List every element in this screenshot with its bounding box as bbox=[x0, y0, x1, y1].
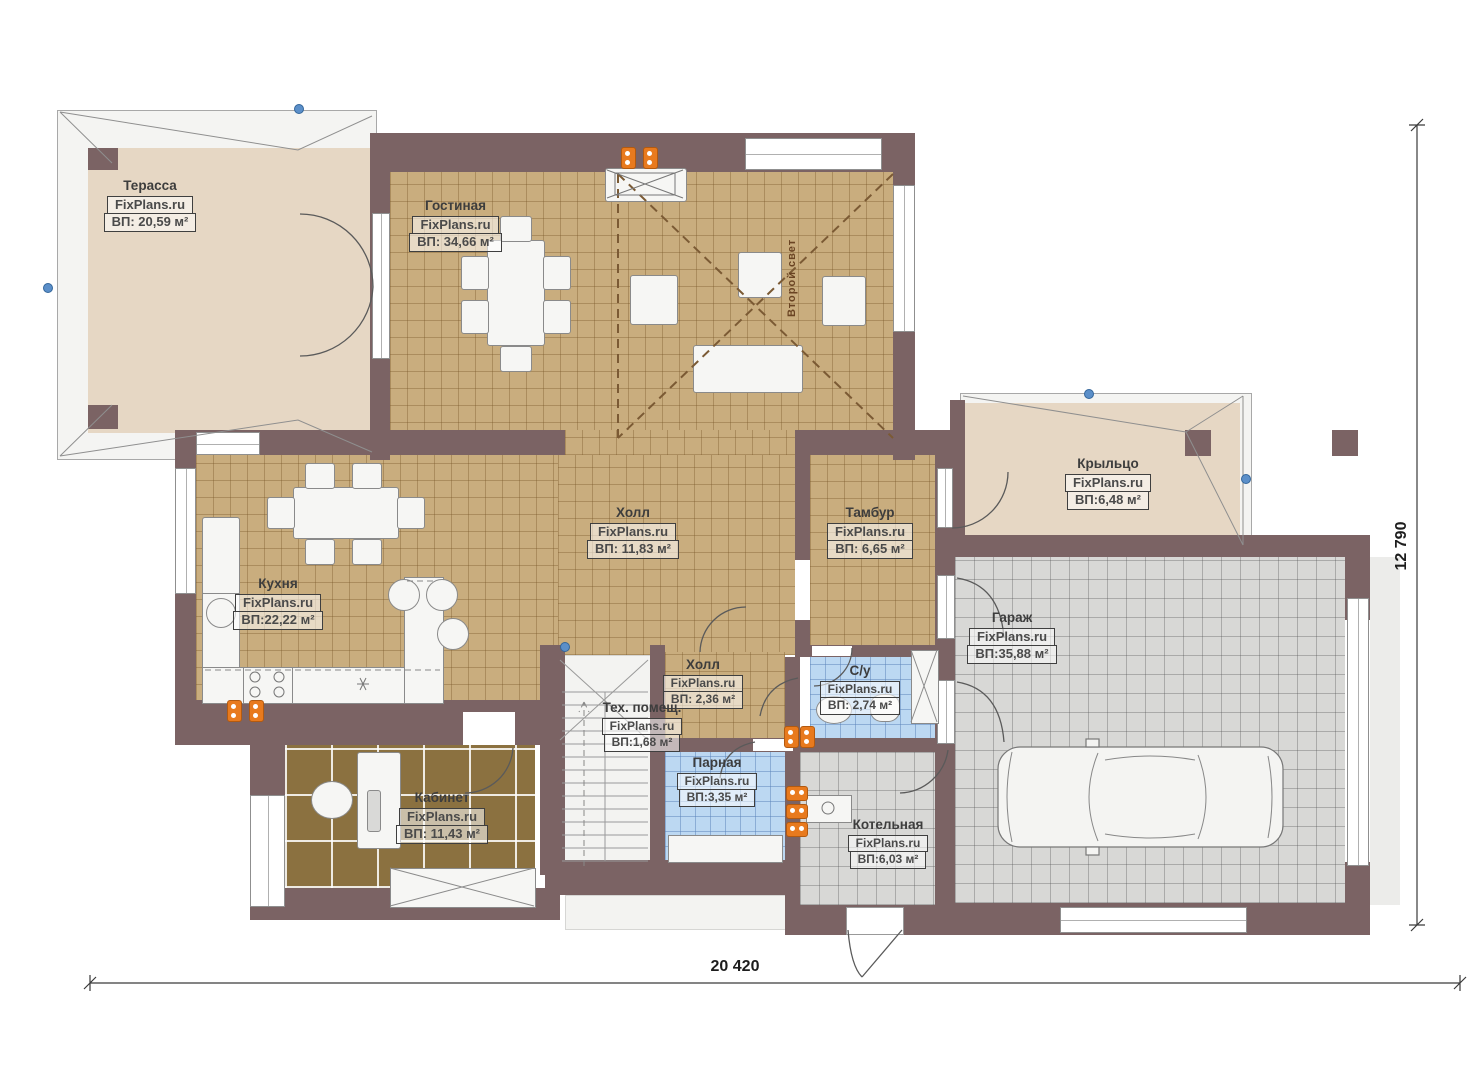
tambour-porch-door bbox=[937, 468, 953, 528]
marker-dot-icon bbox=[560, 642, 570, 652]
room-label-boiler: Котельная FixPlans.ru ВП:6,03 м² bbox=[828, 817, 948, 869]
chair bbox=[305, 463, 335, 489]
chair bbox=[543, 256, 571, 290]
marker-dot-icon bbox=[1241, 474, 1251, 484]
marker-dot-icon bbox=[43, 283, 53, 293]
garage-side-door bbox=[937, 680, 955, 744]
stove bbox=[243, 667, 293, 704]
room-label-kitchen: Кухня FixPlans.ru ВП:22,22 м² bbox=[218, 576, 338, 630]
sofa bbox=[693, 345, 803, 393]
room-name: Холл bbox=[616, 505, 650, 521]
marker-dot-icon bbox=[294, 104, 304, 114]
chair bbox=[352, 463, 382, 489]
chair bbox=[543, 300, 571, 334]
garage-gate bbox=[1347, 598, 1369, 866]
chair bbox=[352, 539, 382, 565]
terrace-pillar bbox=[88, 405, 118, 429]
living-right-window bbox=[893, 185, 915, 332]
watermark: FixPlans.ru bbox=[820, 681, 901, 699]
garage-bottom-window bbox=[1060, 907, 1247, 933]
steam-bench bbox=[668, 835, 783, 863]
heater-icon bbox=[786, 804, 808, 819]
heater-icon bbox=[249, 700, 264, 722]
living-top-window bbox=[745, 138, 882, 170]
porch-pillar bbox=[1185, 430, 1211, 456]
room-area: ВП: 11,83 м² bbox=[587, 540, 679, 559]
chair bbox=[397, 497, 425, 529]
bar-stool bbox=[388, 579, 420, 611]
room-name: Парная bbox=[693, 755, 742, 771]
room-area: ВП: 11,43 м² bbox=[396, 825, 488, 844]
terrace-double-door bbox=[372, 213, 390, 359]
wc-door-opening bbox=[812, 646, 852, 656]
garage-floor bbox=[955, 557, 1345, 903]
wall bbox=[935, 535, 1370, 557]
watermark: FixPlans.ru bbox=[848, 835, 929, 853]
room-name: Тех. помещ. bbox=[603, 700, 682, 716]
room-name: Кабинет bbox=[415, 790, 470, 806]
kitchen-table bbox=[293, 487, 399, 539]
room-label-garage: Гараж FixPlans.ru ВП:35,88 м² bbox=[952, 610, 1072, 664]
marker-dot-icon bbox=[1084, 389, 1094, 399]
room-name: Гараж bbox=[992, 610, 1032, 626]
watermark: FixPlans.ru bbox=[827, 523, 913, 542]
fireplace bbox=[605, 168, 687, 202]
chair bbox=[267, 497, 295, 529]
watermark: FixPlans.ru bbox=[677, 773, 758, 791]
armchair bbox=[630, 275, 678, 325]
chair bbox=[461, 300, 489, 334]
side-table bbox=[738, 252, 782, 298]
wall bbox=[540, 645, 565, 875]
terrace-pillar bbox=[88, 148, 118, 170]
hall-tambour-door-opening bbox=[795, 560, 810, 620]
office-left-window bbox=[250, 795, 285, 907]
room-name: Холл bbox=[686, 657, 720, 673]
desk-monitor bbox=[367, 790, 381, 832]
tech-floor bbox=[558, 655, 652, 862]
room-area: ВП:1,68 м² bbox=[604, 734, 681, 752]
heater-icon bbox=[621, 147, 636, 169]
room-area: ВП: 2,74 м² bbox=[820, 697, 900, 715]
wardrobe bbox=[390, 868, 536, 908]
office-chair bbox=[311, 781, 353, 819]
wall bbox=[795, 440, 810, 655]
second-light-label: Второй свет bbox=[786, 222, 798, 317]
room-area: ВП:6,48 м² bbox=[1067, 491, 1149, 510]
wall bbox=[545, 860, 795, 895]
dining-table bbox=[487, 240, 545, 346]
bar-stool bbox=[426, 579, 458, 611]
chair bbox=[305, 539, 335, 565]
watermark: FixPlans.ru bbox=[399, 808, 485, 827]
room-label-office: Кабинет FixPlans.ru ВП: 11,43 м² bbox=[382, 790, 502, 844]
living-hall-opening bbox=[565, 430, 795, 455]
room-area: ВП:22,22 м² bbox=[233, 611, 322, 630]
wall bbox=[800, 738, 950, 752]
chair bbox=[500, 346, 532, 372]
wall bbox=[785, 657, 800, 905]
room-label-terrace: Терасса FixPlans.ru ВП: 20,59 м² bbox=[90, 178, 210, 232]
watermark: FixPlans.ru bbox=[235, 594, 321, 613]
heater-icon bbox=[643, 147, 658, 169]
watermark: FixPlans.ru bbox=[107, 196, 193, 215]
walkway bbox=[565, 895, 792, 930]
room-label-tambour: Тамбур FixPlans.ru ВП: 6,65 м² bbox=[815, 505, 925, 559]
room-area: ВП:3,35 м² bbox=[679, 789, 756, 807]
chair bbox=[461, 256, 489, 290]
room-area: ВП:6,03 м² bbox=[850, 851, 927, 869]
watermark: FixPlans.ru bbox=[1065, 474, 1151, 493]
bar-stool bbox=[437, 618, 469, 650]
heater-icon bbox=[786, 786, 808, 801]
kitchen-left-window bbox=[175, 468, 196, 594]
watermark: FixPlans.ru bbox=[969, 628, 1055, 647]
room-label-hall: Холл FixPlans.ru ВП: 11,83 м² bbox=[578, 505, 688, 559]
room-label-porch: Крыльцо FixPlans.ru ВП:6,48 м² bbox=[1048, 456, 1168, 510]
armchair bbox=[822, 276, 866, 326]
heater-icon bbox=[800, 726, 815, 748]
pillar bbox=[1332, 430, 1358, 456]
heater-icon bbox=[784, 726, 799, 748]
room-name: Кухня bbox=[258, 576, 297, 592]
driveway-strip bbox=[1370, 557, 1400, 905]
room-label-wc: С/у FixPlans.ru ВП: 2,74 м² bbox=[805, 663, 915, 715]
room-label-living: Гостиная FixPlans.ru ВП: 34,66 м² bbox=[398, 198, 513, 252]
dimension-height-label: 12 790 bbox=[1393, 501, 1411, 591]
room-name: Терасса bbox=[123, 178, 177, 194]
room-area: ВП:35,88 м² bbox=[967, 645, 1056, 664]
floor-plan: Второй свет Терасса FixPlans.ru ВП: 20,5… bbox=[0, 0, 1474, 1080]
room-name: Гостиная bbox=[425, 198, 486, 214]
watermark: FixPlans.ru bbox=[663, 675, 744, 693]
heater-icon bbox=[786, 822, 808, 837]
watermark: FixPlans.ru bbox=[602, 718, 683, 736]
room-name: Тамбур bbox=[846, 505, 895, 521]
watermark: FixPlans.ru bbox=[590, 523, 676, 542]
boiler-exterior-door-opening bbox=[846, 907, 904, 935]
room-area: ВП: 6,65 м² bbox=[827, 540, 913, 559]
wc-cabinet bbox=[911, 650, 939, 724]
room-name: С/у bbox=[849, 663, 870, 679]
room-label-steam: Парная FixPlans.ru ВП:3,35 м² bbox=[662, 755, 772, 807]
office-door-opening bbox=[463, 712, 515, 745]
room-label-tech: Тех. помещ. FixPlans.ru ВП:1,68 м² bbox=[582, 700, 702, 752]
kitchen-corner-window bbox=[196, 432, 260, 455]
room-area: ВП: 20,59 м² bbox=[104, 213, 197, 232]
dimension-width-label: 20 420 bbox=[690, 958, 780, 976]
watermark: FixPlans.ru bbox=[412, 216, 498, 235]
room-name: Котельная bbox=[853, 817, 924, 833]
heater-icon bbox=[227, 700, 242, 722]
room-area: ВП: 34,66 м² bbox=[409, 233, 502, 252]
room-name: Крыльцо bbox=[1077, 456, 1138, 472]
